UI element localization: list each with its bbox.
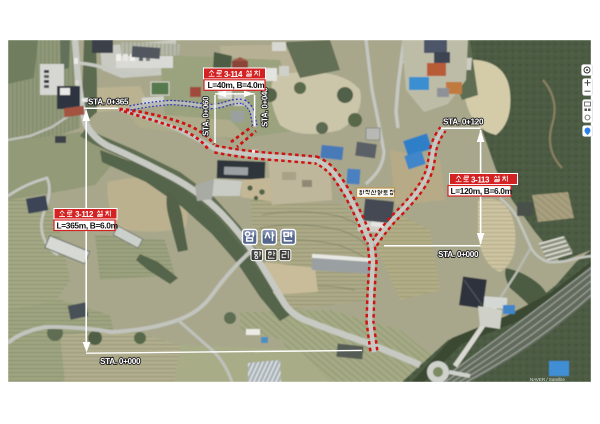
svg-text:STA. 0+000: STA. 0+000	[100, 357, 141, 366]
svg-text:3-112: 3-112	[75, 210, 94, 219]
svg-text:STA. 0+040: STA. 0+040	[261, 87, 270, 127]
svg-text:3-114: 3-114	[224, 70, 243, 79]
svg-text:L=365m, B=6.0m: L=365m, B=6.0m	[57, 220, 118, 230]
svg-text:3-113: 3-113	[471, 176, 490, 185]
svg-text:L=120m, B=6.0m: L=120m, B=6.0m	[451, 186, 512, 196]
svg-text:STA. 0+060: STA. 0+060	[202, 96, 211, 136]
svg-text:STA. 0+120: STA. 0+120	[443, 118, 484, 127]
svg-text:STA. 0+000: STA. 0+000	[438, 250, 479, 259]
svg-text:STA. 0+365: STA. 0+365	[88, 98, 129, 107]
svg-text:L=40m, B=4.0m: L=40m, B=4.0m	[208, 80, 265, 90]
svg-text:NAVER / Satellite: NAVER / Satellite	[530, 377, 565, 382]
